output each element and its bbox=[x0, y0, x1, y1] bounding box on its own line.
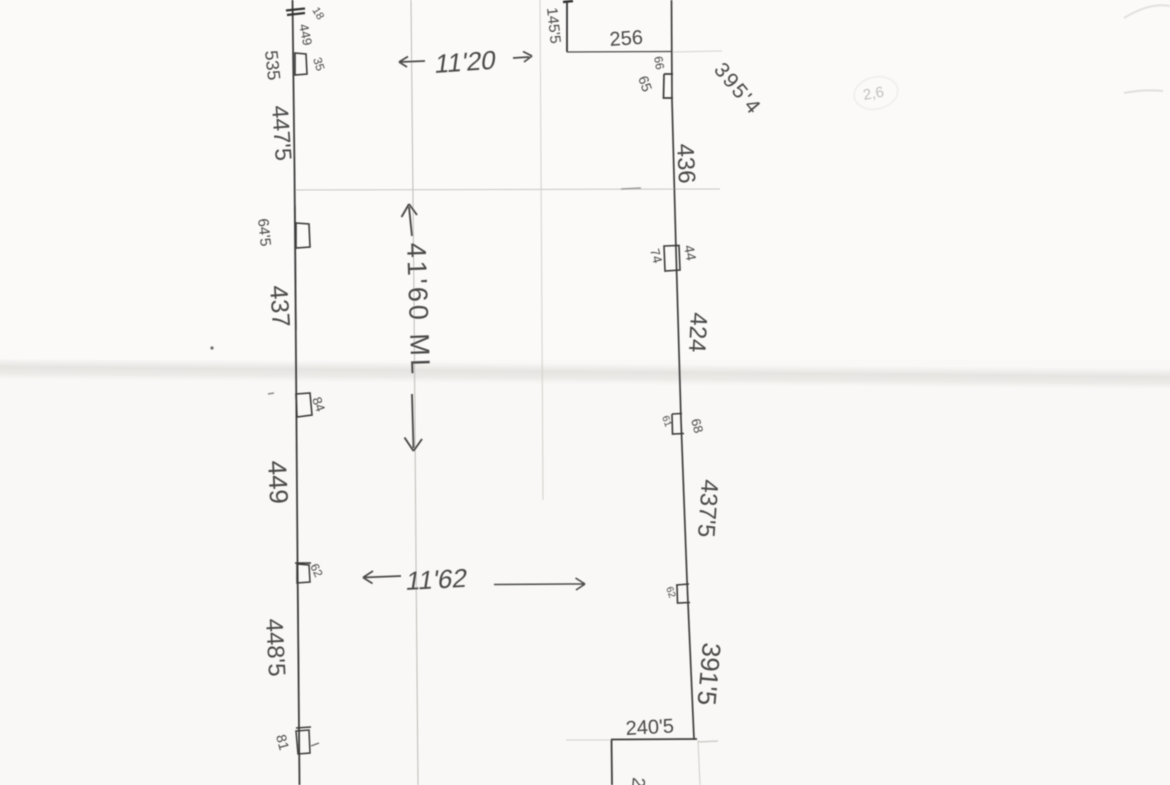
svg-text:447'5: 447'5 bbox=[267, 105, 297, 162]
svg-text:256: 256 bbox=[609, 27, 644, 51]
svg-text:437: 437 bbox=[264, 284, 295, 328]
svg-text:66: 66 bbox=[651, 55, 667, 71]
svg-text:391'5: 391'5 bbox=[692, 641, 727, 706]
svg-text:44: 44 bbox=[681, 244, 699, 262]
svg-text:437'5: 437'5 bbox=[692, 479, 723, 539]
svg-text:436: 436 bbox=[671, 143, 700, 184]
svg-text:449: 449 bbox=[262, 460, 294, 505]
svg-text:11'20: 11'20 bbox=[433, 45, 498, 79]
svg-text:240'5: 240'5 bbox=[625, 715, 674, 739]
svg-text:448'5: 448'5 bbox=[260, 618, 290, 677]
svg-text:2: 2 bbox=[628, 777, 649, 785]
svg-text:2,6: 2,6 bbox=[862, 84, 885, 104]
svg-text:11'62: 11'62 bbox=[404, 563, 470, 596]
svg-text:41'60 ML: 41'60 ML bbox=[401, 242, 436, 377]
svg-text:535: 535 bbox=[261, 49, 284, 81]
svg-text:424: 424 bbox=[683, 312, 712, 353]
svg-text:64'5: 64'5 bbox=[254, 218, 274, 248]
